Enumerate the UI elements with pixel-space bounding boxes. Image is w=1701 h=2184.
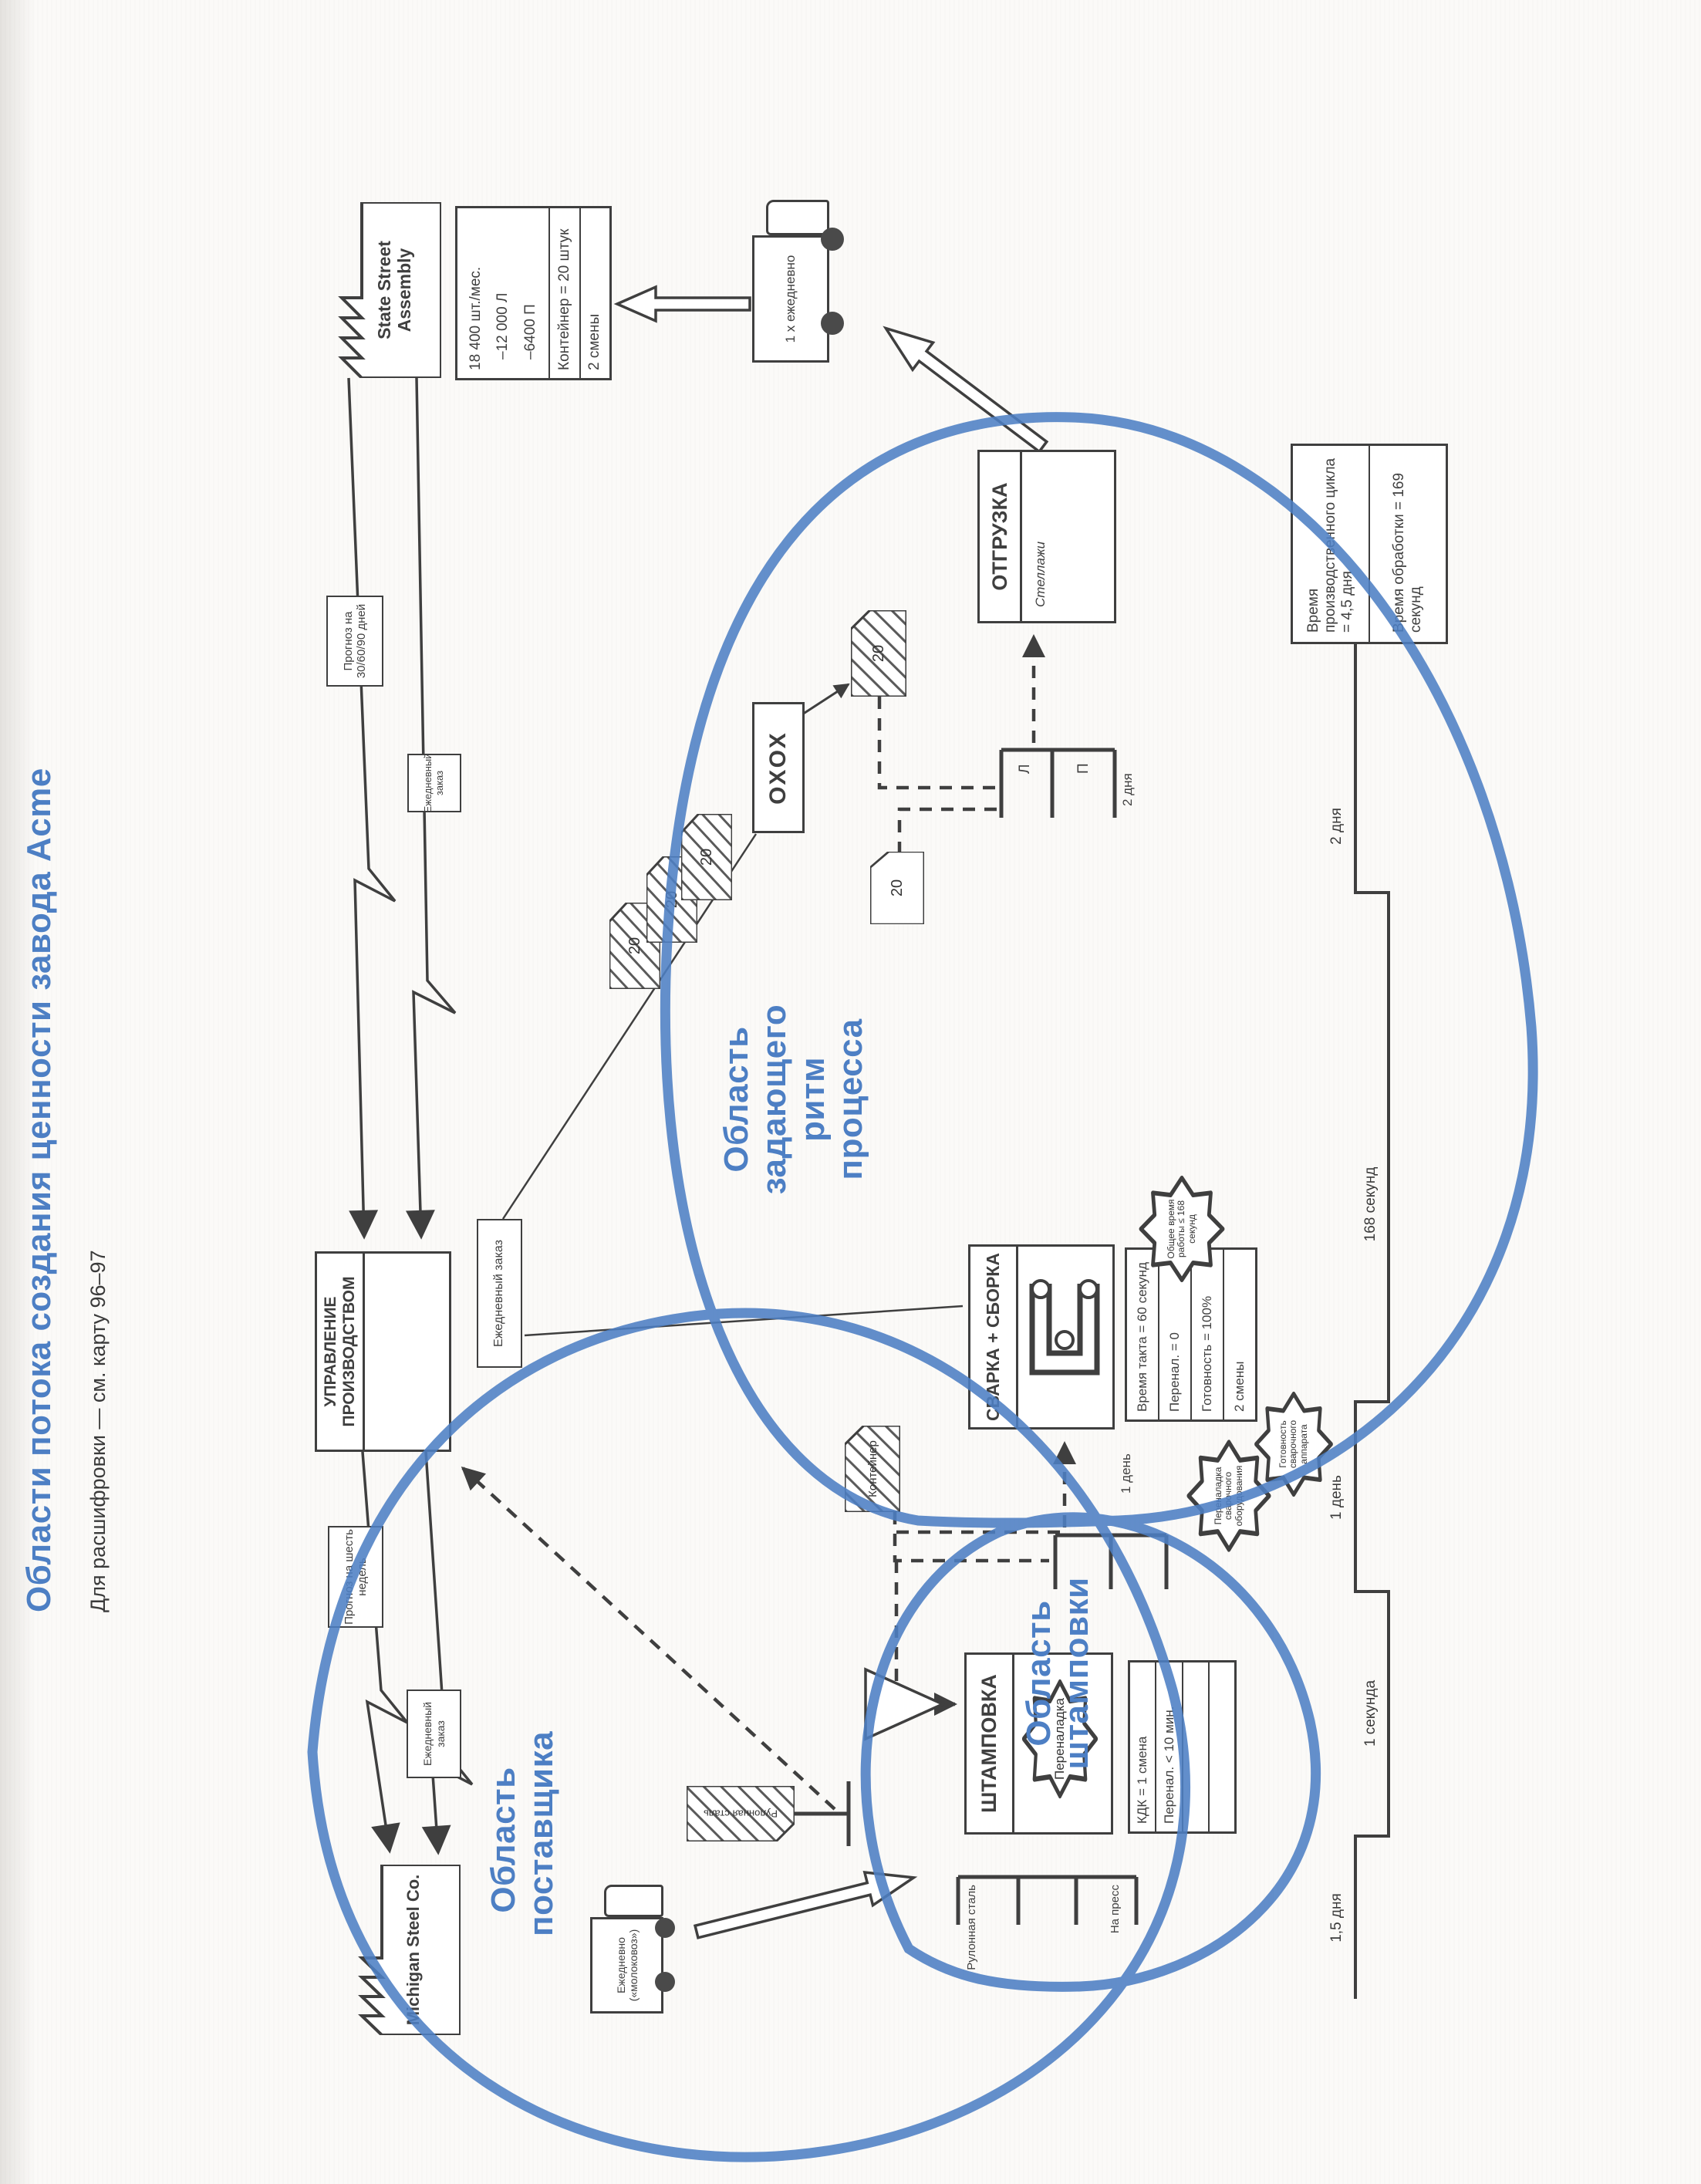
region-label-supplier: Область поставщика [484,1743,561,1936]
value-stream-map: Области потока создания ценности завода … [0,0,1701,2184]
region-label-pacemaker: Область задающего ритм процесса [717,976,869,1223]
pacemaker-area-loop [665,417,1533,1523]
scanned-book-page: Области потока создания ценности завода … [0,0,1701,2184]
region-label-stamping: Область штамповки [1020,1577,1096,1770]
